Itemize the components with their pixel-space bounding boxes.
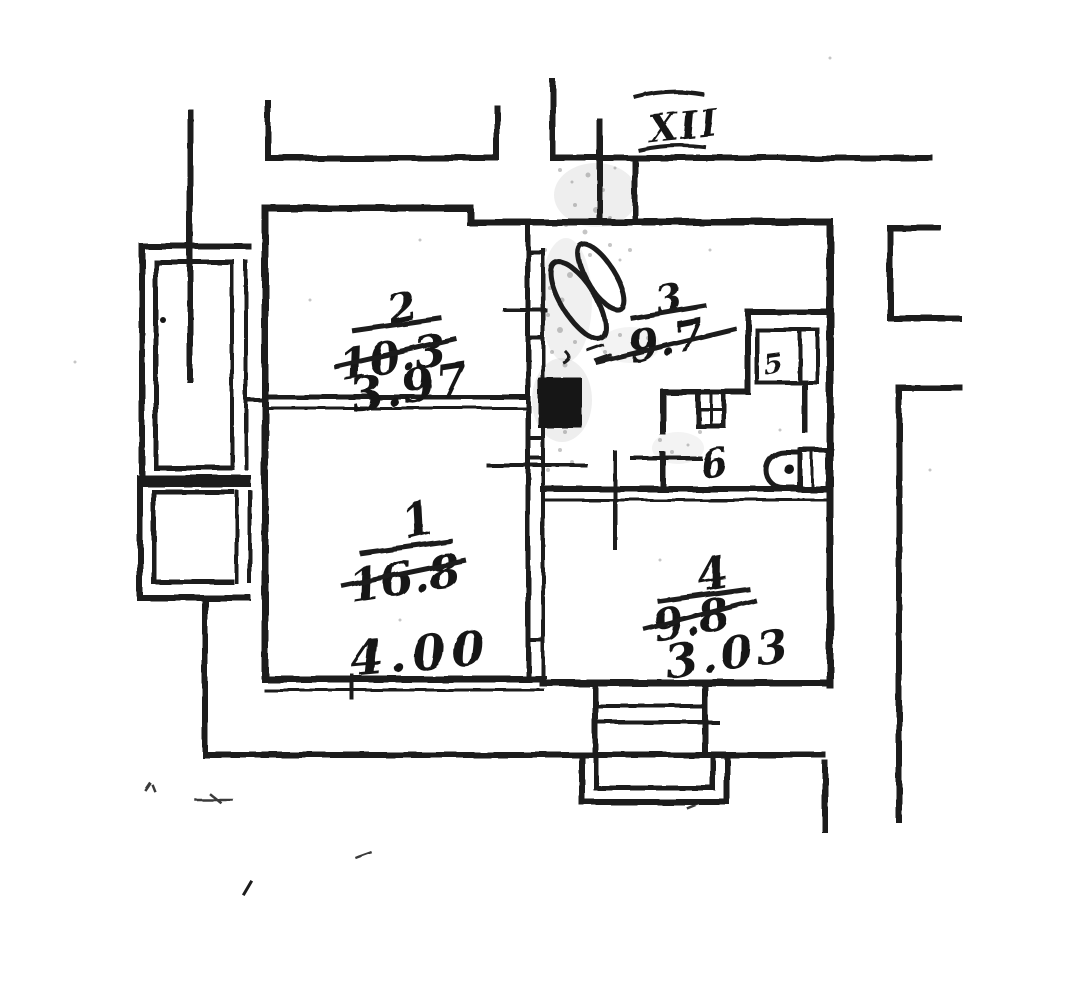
room-5-labels: 5 [761,346,785,381]
ink-layer: XII 2 10.3 3.97 3 9.7 1 16.8 [140,82,960,894]
toilet-bowl [766,452,800,488]
bay-window-upper-left [142,246,265,484]
window-bay-bottom [582,685,727,802]
window-jambs [595,685,705,753]
room-3-labels: 3 9.7 [598,274,734,374]
bay-glazing [237,492,250,582]
room-4-labels: 4 9.8 3.03 [646,547,796,689]
toilet-fixture [766,450,828,490]
room-2-labels: 2 10.3 3.97 [335,282,474,423]
toilet-cistern [800,450,828,490]
room-5-number: 5 [761,346,785,381]
toilet-drain-dot [784,464,794,474]
bay-inner [156,262,232,468]
room-1-labels: 1 16.8 4.00 [344,490,493,688]
smudge-blob [554,163,638,227]
scanned-floor-plan-page: XII 2 10.3 3.97 3 9.7 1 16.8 [0,0,1073,992]
ink-dot [160,317,166,323]
artifact-mark [244,882,251,894]
stairwell-label-group: XII [636,92,721,158]
smudge-blob [540,238,592,362]
window-glazing [597,706,717,722]
flue-shaft [538,378,582,428]
balcony-outline [582,755,727,802]
balcony-inner-line [596,755,713,788]
scan-speckle-layer [74,57,932,622]
bay-inner [154,492,232,582]
stairwell-label: XII [644,99,721,151]
vent-duct-grid [698,392,724,426]
floor-plan-drawing: XII 2 10.3 3.97 3 9.7 1 16.8 [0,0,1073,992]
hall-number: 6 [697,439,731,489]
bay-window-lower-left [140,478,250,598]
hall-labels: 6 [697,439,731,489]
artifact-mark [146,784,698,857]
bay-glazing [232,262,265,468]
stairwell-overline [636,92,702,97]
